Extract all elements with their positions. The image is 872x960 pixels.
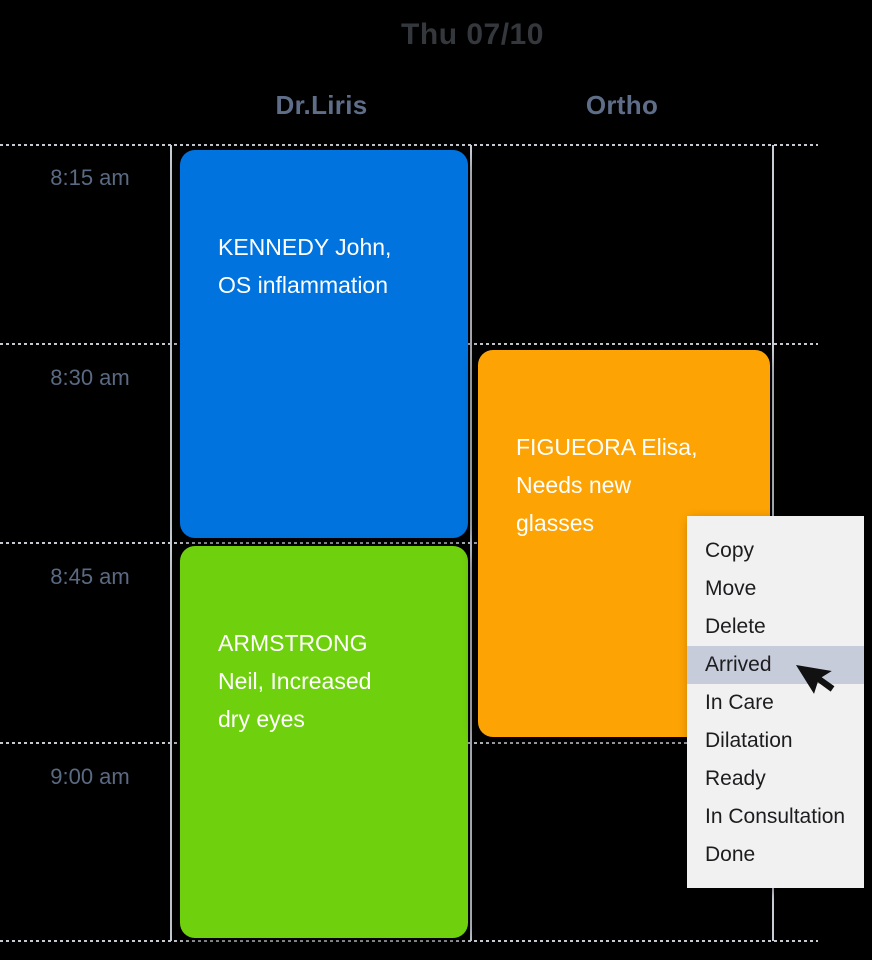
time-label-830: 8:30 am bbox=[0, 364, 180, 392]
column-header-dr-liris: Dr.Liris bbox=[172, 90, 471, 121]
time-label-815: 8:15 am bbox=[0, 164, 180, 192]
menu-item-arrived[interactable]: Arrived bbox=[687, 646, 864, 684]
menu-item-delete[interactable]: Delete bbox=[687, 608, 864, 646]
menu-item-in-care[interactable]: In Care bbox=[687, 684, 864, 722]
menu-item-dilatation[interactable]: Dilatation bbox=[687, 722, 864, 760]
appointment-armstrong-label: ARMSTRONG Neil, Increased dry eyes bbox=[218, 630, 371, 732]
appointment-kennedy-label: KENNEDY John, OS inflammation bbox=[218, 234, 391, 298]
menu-item-in-consultation[interactable]: In Consultation bbox=[687, 798, 864, 836]
column-header-ortho: Ortho bbox=[471, 90, 773, 121]
appointment-kennedy[interactable]: KENNEDY John, OS inflammation bbox=[180, 150, 468, 538]
time-label-900: 9:00 am bbox=[0, 763, 180, 791]
scheduler-day-view: Thu 07/10 Dr.Liris Ortho 8:15 am 8:30 am… bbox=[0, 0, 872, 960]
menu-item-copy[interactable]: Copy bbox=[687, 532, 864, 570]
appointment-figueora-label: FIGUEORA Elisa, Needs new glasses bbox=[516, 434, 697, 536]
grid-vline-columns bbox=[470, 145, 472, 941]
grid-vline-gutter bbox=[170, 145, 172, 941]
menu-item-ready[interactable]: Ready bbox=[687, 760, 864, 798]
date-header: Thu 07/10 bbox=[172, 18, 773, 52]
menu-item-done[interactable]: Done bbox=[687, 836, 864, 874]
menu-item-move[interactable]: Move bbox=[687, 570, 864, 608]
time-label-845: 8:45 am bbox=[0, 563, 180, 591]
appointment-armstrong[interactable]: ARMSTRONG Neil, Increased dry eyes bbox=[180, 546, 468, 938]
context-menu: Copy Move Delete Arrived In Care Dilatat… bbox=[687, 516, 864, 888]
grid-hline-815 bbox=[0, 144, 818, 146]
grid-hline-bottom bbox=[0, 940, 818, 942]
